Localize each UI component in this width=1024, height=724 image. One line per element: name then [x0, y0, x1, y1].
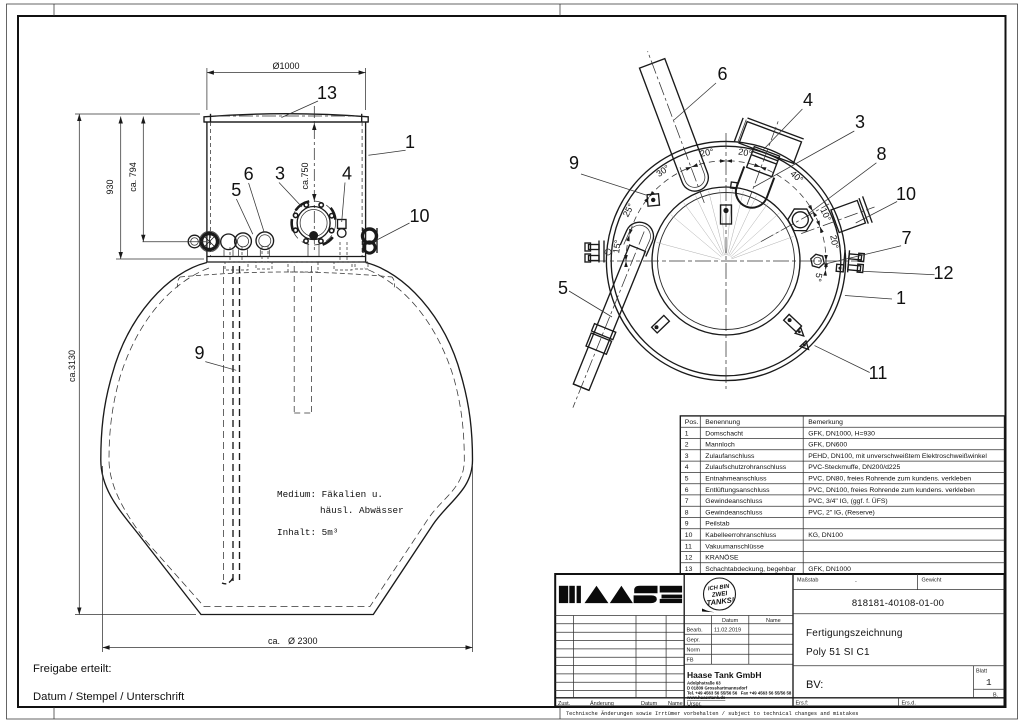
svg-text:KG, DN100: KG, DN100	[808, 532, 843, 539]
svg-text:Datum: Datum	[641, 701, 658, 707]
svg-text:Gewicht: Gewicht	[922, 578, 942, 584]
svg-text:Mannloch: Mannloch	[705, 442, 735, 449]
svg-text:Domschacht: Domschacht	[705, 430, 743, 437]
svg-text:www.haasetank.de: www.haasetank.de	[686, 695, 726, 700]
svg-text:PEHD, DN100, mit unverschweißt: PEHD, DN100, mit unverschweißtem Elektro…	[808, 453, 987, 460]
svg-text:10: 10	[896, 184, 916, 204]
svg-text:Blatt: Blatt	[976, 669, 987, 675]
svg-text:GFK, DN1000: GFK, DN1000	[808, 566, 851, 573]
svg-text:Schachtabdeckung, begehbar: Schachtabdeckung, begehbar	[705, 566, 796, 573]
svg-text:Ø 2300: Ø 2300	[288, 636, 318, 646]
svg-text:Ers.d.: Ers.d.	[902, 701, 917, 707]
svg-text:6: 6	[685, 487, 689, 494]
svg-text:12: 12	[685, 555, 693, 562]
svg-text:GFK, DN1000, H=930: GFK, DN1000, H=930	[808, 430, 875, 437]
svg-text:15°: 15°	[611, 239, 623, 254]
svg-text:Vakuumanschlüsse: Vakuumanschlüsse	[705, 543, 764, 550]
svg-text:Gewindeanschluss: Gewindeanschluss	[705, 498, 763, 505]
svg-text:3: 3	[685, 453, 689, 460]
svg-text:13: 13	[685, 566, 693, 573]
svg-text:5°: 5°	[813, 272, 824, 283]
svg-text:9: 9	[685, 521, 689, 528]
svg-text:1: 1	[986, 677, 992, 688]
svg-text:20°: 20°	[828, 234, 840, 250]
svg-text:Pos.: Pos.	[685, 419, 699, 426]
svg-text:Zulaufanschluss: Zulaufanschluss	[705, 453, 755, 460]
svg-text:Kabelleerrohranschluss: Kabelleerrohranschluss	[705, 532, 777, 539]
svg-text:9: 9	[569, 153, 579, 173]
svg-text:10: 10	[409, 206, 429, 226]
svg-text:Poly 51 SI C1: Poly 51 SI C1	[806, 647, 870, 658]
svg-text:Technische Änderungen sowie Ir: Technische Änderungen sowie Irrtümer vor…	[566, 710, 858, 717]
svg-text:2: 2	[685, 442, 689, 449]
svg-text:Zust.: Zust.	[558, 701, 571, 707]
svg-text:6: 6	[717, 64, 727, 84]
svg-text:FB: FB	[687, 658, 694, 664]
svg-text:Medium: Fäkalien u.: Medium: Fäkalien u.	[277, 489, 383, 500]
svg-text:Inhalt: 5m³: Inhalt: 5m³	[277, 527, 338, 538]
svg-text:8: 8	[685, 509, 689, 516]
svg-text:ca. 794: ca. 794	[128, 162, 138, 192]
svg-text:Freigabe erteilt:: Freigabe erteilt:	[33, 663, 112, 675]
svg-text:3: 3	[855, 112, 865, 132]
svg-text:40°: 40°	[788, 168, 805, 185]
svg-text:4: 4	[685, 464, 689, 471]
svg-text:3: 3	[275, 164, 285, 184]
svg-text:Haase Tank GmbH: Haase Tank GmbH	[687, 670, 761, 680]
svg-text:5: 5	[231, 180, 241, 200]
svg-text:Gepr.: Gepr.	[687, 638, 701, 644]
svg-text:25°: 25°	[621, 201, 636, 218]
svg-text:BV:: BV:	[806, 679, 823, 691]
svg-text:häusl. Abwässer: häusl. Abwässer	[320, 505, 404, 516]
svg-text:11: 11	[685, 543, 692, 550]
svg-text:12: 12	[933, 263, 953, 283]
svg-text:Entnahmeanschluss: Entnahmeanschluss	[705, 476, 767, 483]
svg-text:PVC-Steckmuffe, DN200/d225: PVC-Steckmuffe, DN200/d225	[808, 464, 900, 471]
svg-text:4: 4	[342, 164, 352, 184]
svg-text:PVC, DN100, freies Rohrende zu: PVC, DN100, freies Rohrende zum kundens.…	[808, 487, 975, 494]
svg-text:Änderung: Änderung	[590, 700, 614, 707]
svg-text:13: 13	[317, 83, 337, 103]
svg-text:Zulaufschutzrohranschluss: Zulaufschutzrohranschluss	[705, 464, 786, 471]
svg-text:Maßstab: Maßstab	[797, 578, 818, 584]
svg-text:Ø1000: Ø1000	[272, 61, 299, 71]
svg-text:Gewindeanschluss: Gewindeanschluss	[705, 509, 763, 516]
svg-text:PVC, DN80, freies Rohrende zum: PVC, DN80, freies Rohrende zum kundens. …	[808, 476, 971, 483]
svg-text:PVC, 3/4" IG, (ggf. f. ÜFS): PVC, 3/4" IG, (ggf. f. ÜFS)	[808, 497, 887, 505]
svg-text:Urspr.: Urspr.	[687, 702, 702, 708]
svg-text:Name: Name	[668, 701, 683, 707]
svg-text:11: 11	[869, 363, 888, 383]
svg-text:6: 6	[244, 164, 254, 184]
svg-text:-: -	[855, 579, 857, 585]
svg-text:818181-40108-01-00: 818181-40108-01-00	[852, 598, 944, 609]
svg-text:Datum / Stempel / Unterschrift: Datum / Stempel / Unterschrift	[33, 691, 185, 703]
svg-text:10: 10	[685, 532, 693, 539]
svg-text:5: 5	[558, 278, 568, 298]
svg-text:Peilstab: Peilstab	[705, 521, 729, 528]
svg-text:Name: Name	[766, 618, 781, 624]
svg-text:4: 4	[803, 90, 813, 110]
svg-text:Datum: Datum	[722, 618, 739, 624]
svg-text:30°: 30°	[654, 163, 671, 179]
svg-text:ca.: ca.	[268, 636, 280, 646]
svg-text:ca.3130: ca.3130	[67, 350, 77, 382]
svg-text:PVC, 2" IG, (Reserve): PVC, 2" IG, (Reserve)	[808, 509, 875, 516]
svg-text:Bemerkung: Bemerkung	[808, 419, 843, 426]
svg-text:ca.750: ca.750	[300, 162, 310, 189]
svg-text:1: 1	[896, 288, 906, 308]
svg-text:Bearb.: Bearb.	[687, 628, 704, 634]
svg-text:8: 8	[876, 144, 886, 164]
svg-text:930: 930	[105, 179, 115, 194]
svg-text:Entlüftungsanschluss: Entlüftungsanschluss	[705, 487, 770, 494]
svg-text:9: 9	[194, 343, 204, 363]
svg-text:7: 7	[685, 498, 689, 505]
svg-text:Fertigungszeichnung: Fertigungszeichnung	[806, 628, 903, 639]
svg-text:KRANÖSE: KRANÖSE	[705, 554, 739, 562]
svg-text:11.02.2019: 11.02.2019	[714, 628, 741, 634]
svg-text:Norm: Norm	[687, 648, 701, 654]
svg-text:1: 1	[685, 430, 689, 437]
svg-text:7: 7	[901, 228, 911, 248]
svg-text:5: 5	[685, 476, 689, 483]
svg-text:Benennung: Benennung	[705, 419, 740, 426]
svg-text:1: 1	[405, 132, 415, 152]
svg-text:GFK, DN600: GFK, DN600	[808, 442, 847, 449]
svg-text:B.: B.	[993, 692, 999, 698]
svg-text:10°: 10°	[818, 206, 833, 223]
svg-text:Ers.f:: Ers.f:	[796, 701, 809, 707]
